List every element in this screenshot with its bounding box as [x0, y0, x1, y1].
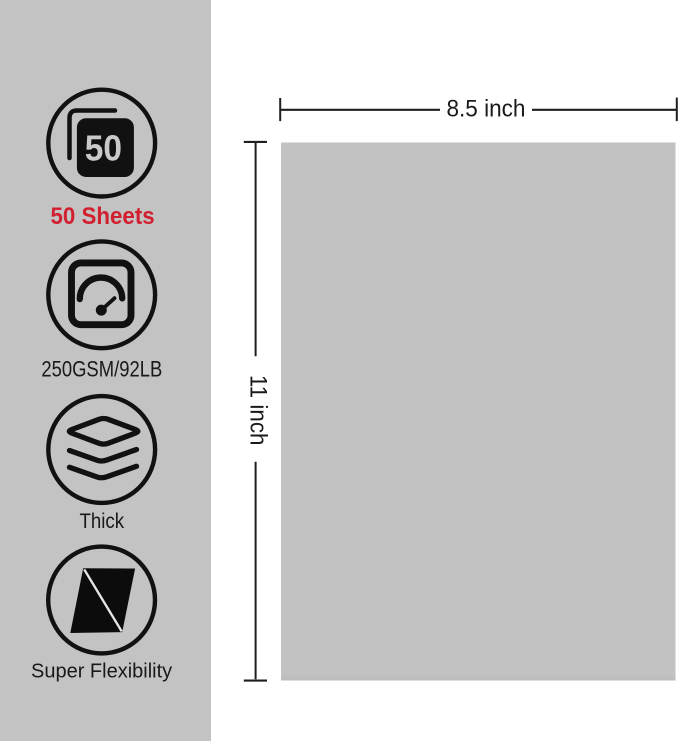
svg-text:11 inch: 11 inch	[245, 375, 272, 446]
svg-text:8.5 inch: 8.5 inch	[447, 95, 526, 122]
svg-text:250GSM/92LB: 250GSM/92LB	[41, 357, 162, 382]
svg-text:Super Flexibility: Super Flexibility	[31, 661, 172, 683]
svg-text:50: 50	[85, 129, 122, 168]
svg-text:50 Sheets: 50 Sheets	[51, 202, 155, 229]
svg-text:Thick: Thick	[79, 510, 125, 533]
